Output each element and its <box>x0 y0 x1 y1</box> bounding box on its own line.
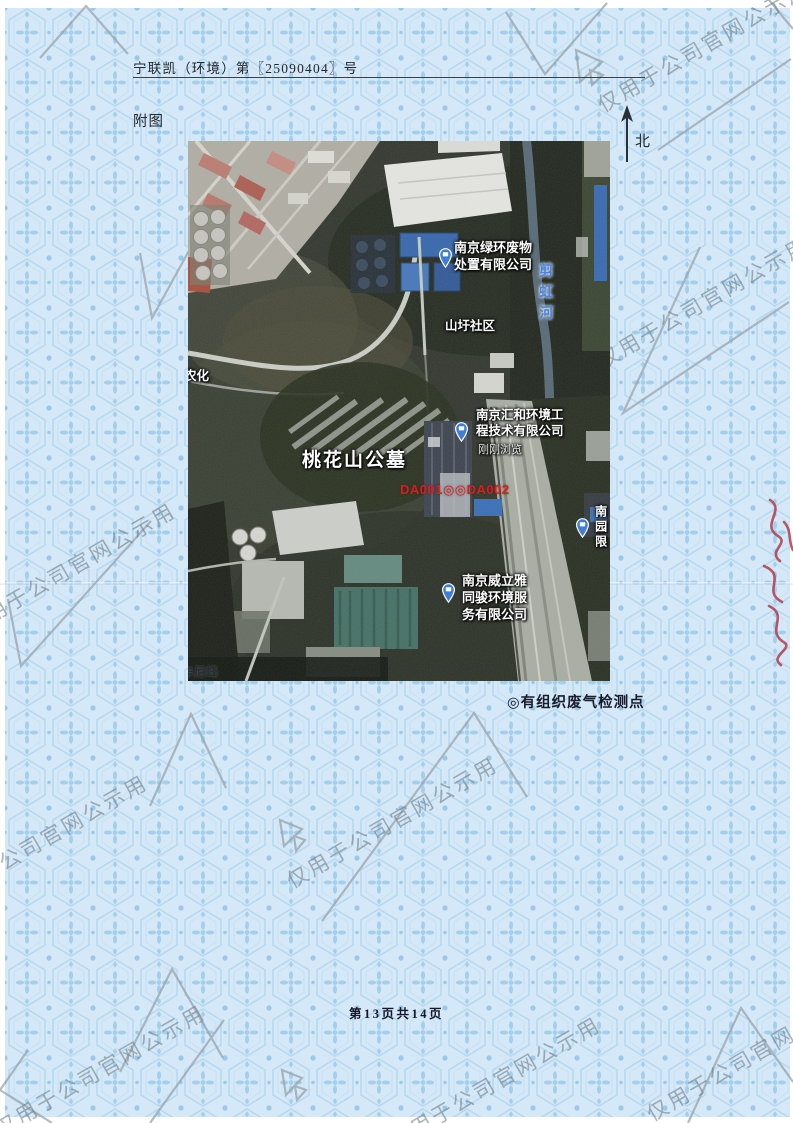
map-label-line: 处置有限公司 <box>454 257 532 274</box>
map-label-huihe-note: 刚刚浏览 <box>478 443 522 457</box>
map-label-cemetery: 桃花山公墓 <box>302 449 407 474</box>
map-label-river: 剪虹河 <box>537 263 555 339</box>
doc-number: 宁联凯（环境）第〖25090404〗号 <box>133 57 358 77</box>
legend: ◎有组织废气检测点 <box>507 691 645 712</box>
map-label-clipped-company: 南园限 <box>592 505 608 553</box>
map-label-green-ring: 南京绿环废物 处置有限公司 <box>454 240 532 274</box>
map-label-line: 南京绿环废物 <box>454 240 532 257</box>
map-label-line: 程技术有限公司 <box>476 423 564 439</box>
map-label-line: 南京汇和环境工 <box>476 407 564 423</box>
map-label-monitoring-points: DA001◎◎DA002 <box>400 482 510 499</box>
document-page: 仅用于公司官网公示用 仅用于公司官网公示用 仅用于公司官网公示用 仅用于公司官网… <box>0 0 793 1123</box>
location-pin-icon <box>454 421 469 442</box>
map-label-veolia: 南京威立雅 同骏环境服 务有限公司 <box>462 573 527 624</box>
map-label-agrochem: 农化 <box>188 368 209 384</box>
map-label-huihe: 南京汇和环境工 程技术有限公司 <box>476 407 564 440</box>
map-pin <box>438 247 453 268</box>
map-label-peak: 牟尼峰 <box>188 665 218 681</box>
map-pin <box>454 421 469 442</box>
header-rule <box>133 77 645 78</box>
location-pin-icon <box>575 517 590 538</box>
location-pin-icon <box>438 247 453 268</box>
map-label-line: 同骏环境服 <box>462 590 527 607</box>
red-handwriting-mark <box>740 492 793 672</box>
north-label: 北 <box>635 130 650 151</box>
map-label-line: 南京威立雅 <box>462 573 527 590</box>
map-label-community: 山圩社区 <box>445 318 495 334</box>
figure-label: 附图 <box>133 110 164 131</box>
page-number: 第13页共14页 <box>0 1003 793 1022</box>
map-pin <box>441 582 456 603</box>
location-pin-icon <box>441 582 456 603</box>
map-label-line: 务有限公司 <box>462 607 527 624</box>
north-indicator: 北 <box>598 102 658 168</box>
satellite-map: 南京绿环废物 处置有限公司 剪虹河 山圩社区 南京汇和环境工 程技术有限公司 刚… <box>188 141 610 681</box>
map-pin <box>575 517 590 538</box>
